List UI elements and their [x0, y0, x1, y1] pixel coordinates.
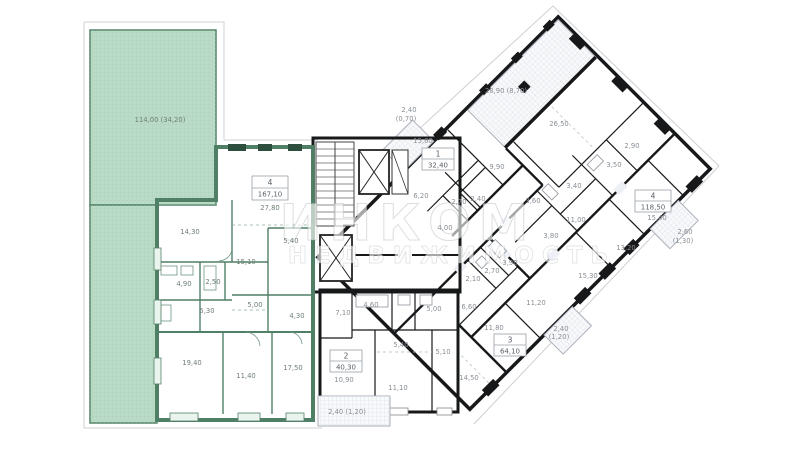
room-area-label: 3,60 [525, 197, 540, 205]
wall [537, 191, 577, 231]
room-area-label: 14,50 [459, 374, 478, 382]
room-area-label: 5,30 [199, 307, 214, 315]
toilet [161, 305, 171, 321]
room-area-label: 15,30 [578, 272, 597, 280]
room-area-label: 3,90 [502, 259, 517, 267]
door-arc [290, 332, 302, 344]
room-area-label: 2,70 [484, 267, 499, 275]
room-area-label: 2,40 [470, 195, 485, 203]
room-area-label: 26,50 [549, 120, 568, 128]
apartment-area: 118,50 [641, 204, 666, 212]
terrace-strip-hatch [90, 205, 157, 423]
apartment-area: 64,10 [500, 348, 520, 356]
room-area-label: 19,40 [182, 359, 201, 367]
room-area-label: 5,40 [283, 237, 298, 245]
apartment-area: 167,10 [258, 191, 283, 199]
wall [506, 148, 543, 185]
room-area-label: 5,00 [426, 305, 441, 313]
door-arc [219, 250, 232, 261]
room-area-label: 15,10 [236, 258, 255, 266]
apartment-number: 1 [436, 150, 441, 159]
room-area-label: 11,40 [236, 372, 255, 380]
window-block [611, 75, 629, 93]
room-area-label: 3,40 [566, 182, 581, 190]
room-area-label: 4,00 [437, 224, 452, 232]
window [238, 413, 260, 421]
window [154, 300, 161, 324]
apartment-area: 32,40 [428, 162, 448, 170]
balcony-area-label: 2,40 [401, 106, 416, 114]
apartment-number: 3 [508, 336, 513, 345]
room-area-label: 11,00 [566, 216, 585, 224]
apartment-number: 2 [344, 352, 349, 361]
room-area-label: 11,10 [388, 384, 407, 392]
room-area-label: 4,30 [289, 312, 304, 320]
balcony-area-label: (0,70) [396, 115, 417, 123]
sink [181, 266, 193, 275]
room-area-label: 3,80 [543, 232, 558, 240]
room-area-label: 7,10 [335, 309, 350, 317]
door-arc [246, 332, 260, 346]
room-area-label: 4,60 [363, 301, 378, 309]
terrace-area-label: 114,00 (34,20) [135, 116, 186, 124]
room-area-label: 27,80 [260, 204, 279, 212]
room-area-label: 4,90 [176, 280, 191, 288]
wall [460, 167, 485, 192]
room-area-label: 5,10 [435, 348, 450, 356]
window-block [228, 144, 246, 151]
green-window-blocks [228, 144, 302, 151]
floor-plan: ИНКОМ НЕДВИЖИМОСТЬ 114,00 (34,20) 4 167,… [0, 0, 800, 450]
room-area-label: 10,90 [334, 376, 353, 384]
green-windows [154, 248, 304, 421]
sink [161, 266, 177, 275]
apartment-area: 40,30 [336, 364, 356, 372]
wall [505, 303, 540, 338]
room-area-label: 2,10 [465, 275, 480, 283]
room-area-label: 14,30 [180, 228, 199, 236]
window [437, 408, 452, 415]
room-area-label: 15,40 [647, 214, 666, 222]
room-area-label: 15,60 [413, 137, 432, 145]
window [154, 358, 161, 384]
balcony-area-label: 2,60 [677, 228, 692, 236]
room-area-label: 11,80 [484, 324, 503, 332]
room-area-label: 9,90 [489, 163, 504, 171]
window [170, 413, 198, 421]
window-block [258, 144, 272, 151]
room-area-label: 2,70 [451, 198, 466, 206]
balcony-area-label: (1,30) [673, 237, 694, 245]
room-area-label: 5,00 [247, 301, 262, 309]
room-area-label: 5,40 [393, 341, 408, 349]
room-area-label: 3,50 [606, 161, 621, 169]
apartment-number: 4 [651, 192, 656, 201]
apartment-number: 4 [268, 178, 273, 187]
window-block [288, 144, 302, 151]
room-area-label: 13,20 [616, 244, 635, 252]
room-area-label: 2,50 [205, 278, 220, 286]
floor-plan-page: ИНКОМ НЕДВИЖИМОСТЬ 114,00 (34,20) 4 167,… [0, 0, 800, 450]
room-area-label: 17,50 [283, 364, 302, 372]
terrace-area-label: 28,90 (8,70) [485, 87, 527, 95]
window [154, 248, 161, 270]
balcony-area-label: 2,40 (1,20) [328, 408, 366, 416]
balcony-area-label: (1,20) [549, 333, 570, 341]
window [286, 413, 304, 421]
room-area-label: 11,20 [526, 299, 545, 307]
room-area-label: 6,60 [461, 303, 476, 311]
washer [398, 295, 410, 305]
room-area-label: 2,90 [624, 142, 639, 150]
sink [420, 295, 432, 305]
window-block [654, 117, 672, 135]
balcony-area-label: 2,40 [553, 325, 568, 333]
watermark-line-2: НЕДВИЖИМОСТЬ [288, 243, 616, 269]
room-area-label: 6,20 [413, 192, 428, 200]
